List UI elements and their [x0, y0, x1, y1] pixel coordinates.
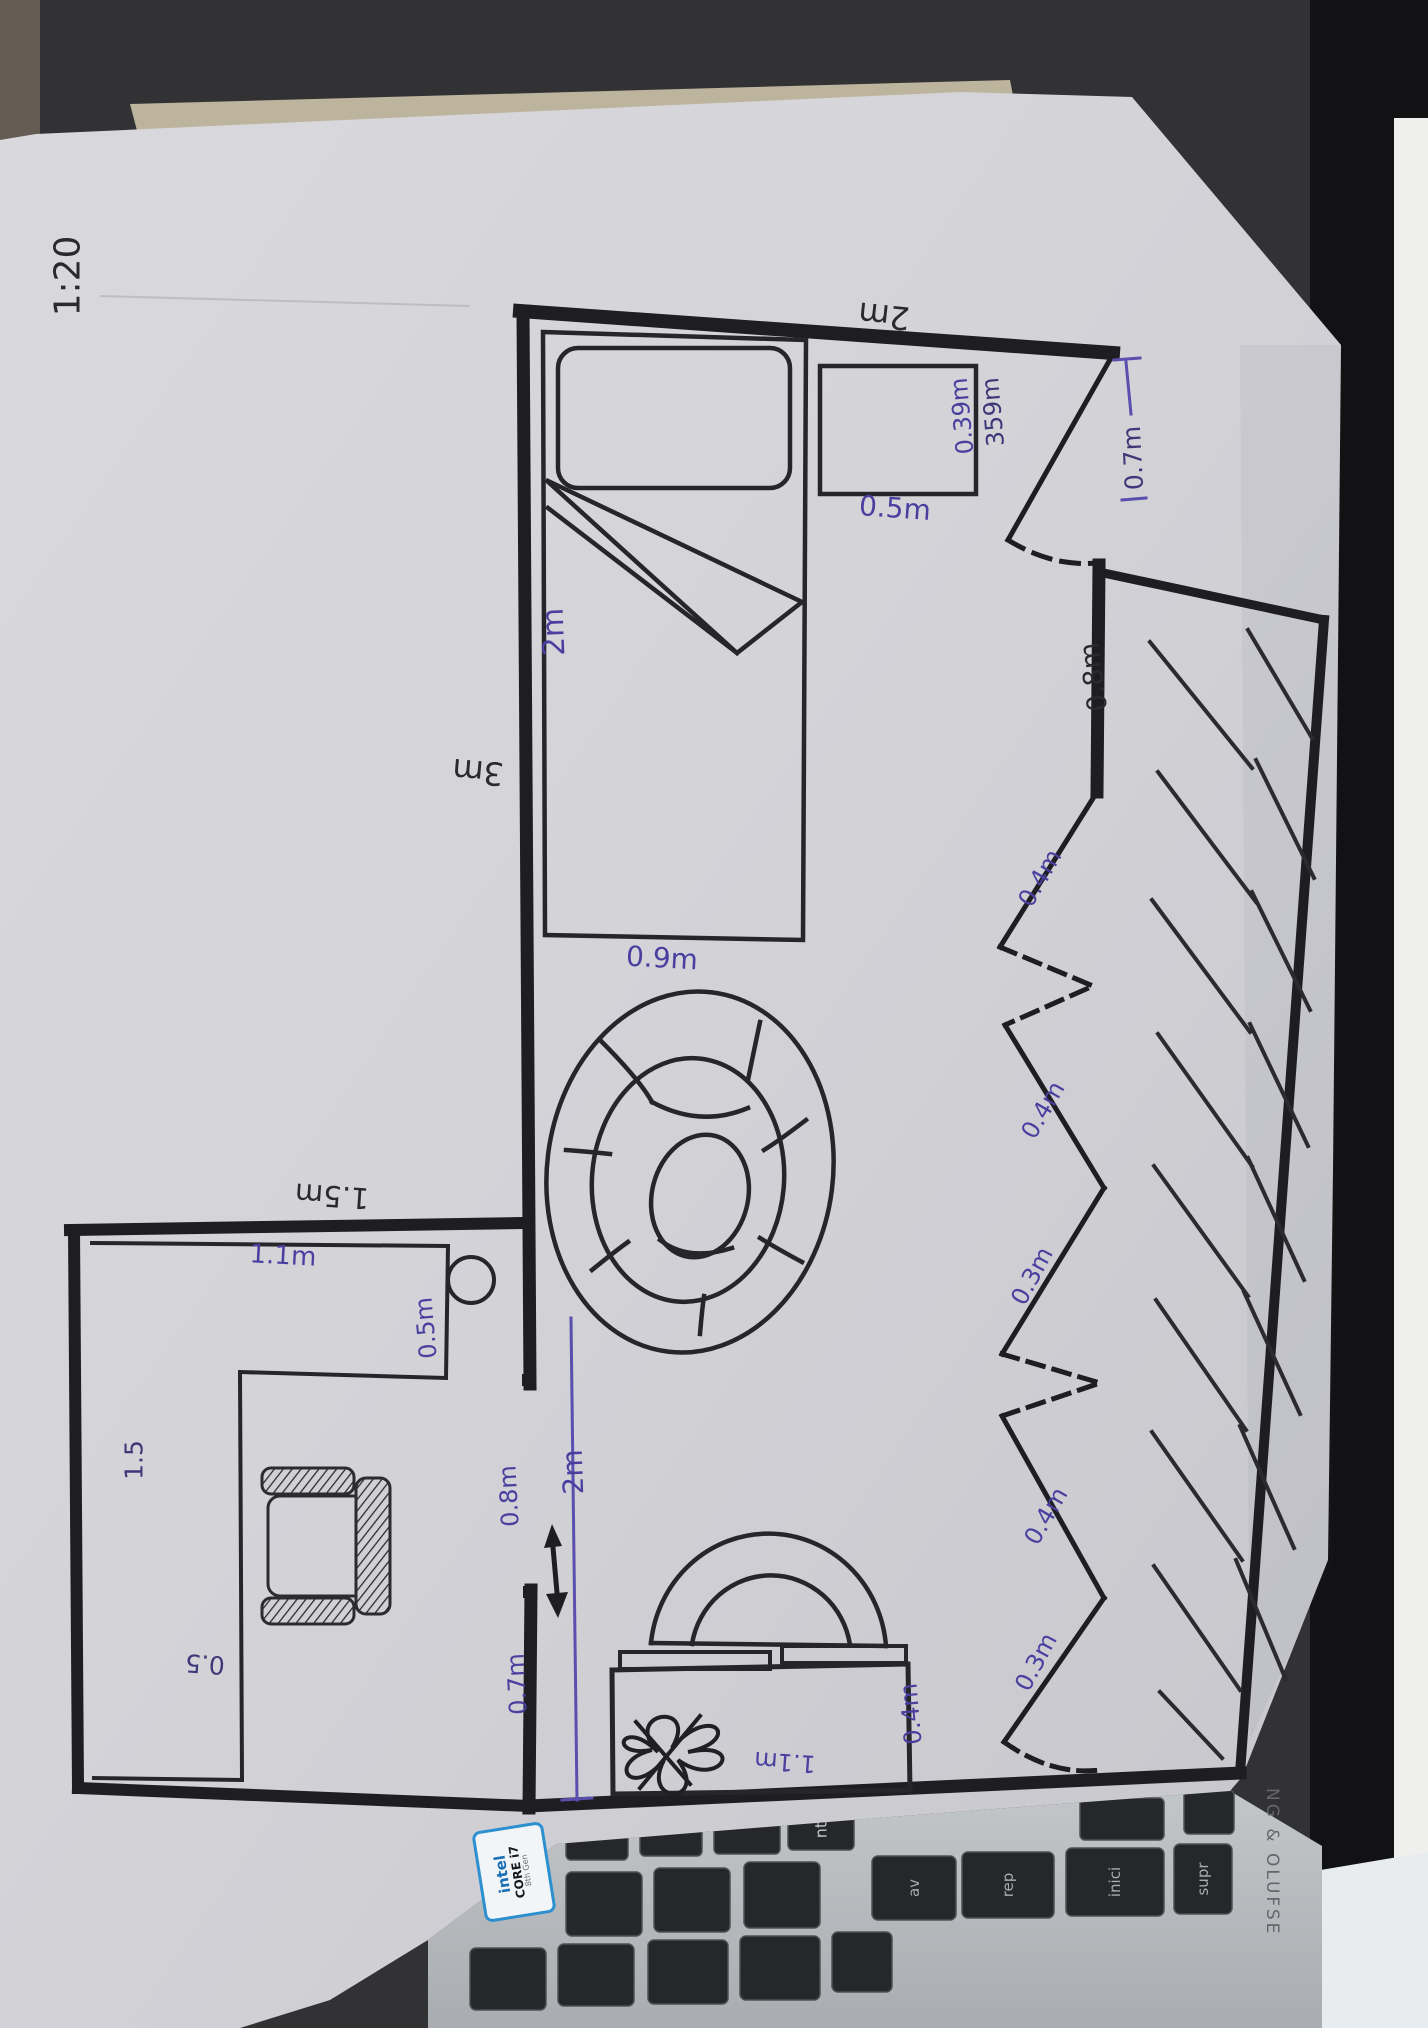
dim-desk-width: 1.1m [249, 1239, 317, 1272]
laptop-brand-text: NG & OLUFSE [1262, 1788, 1282, 1936]
dim-dresser-depth: 0.4m [894, 1682, 927, 1746]
key-re-pag[interactable]: rep [999, 1873, 1017, 1898]
photo-of-hand-drawn-floor-plan: 1:20 2m 3m 2m 0.9m 0.5m 0.39m 359m 0.7m … [0, 0, 1428, 2028]
dim-left-opening-wall-upper: 0.8m [493, 1465, 524, 1528]
key-inicio[interactable]: inici [1106, 1867, 1124, 1897]
dim-left-opening-wall-lower: 0.7m [501, 1653, 532, 1716]
wall-deskroom-left [74, 1230, 78, 1788]
door-jamb-tick-upper [522, 1374, 536, 1386]
key-supr[interactable]: supr [1194, 1862, 1212, 1895]
key-enter[interactable]: nt [812, 1822, 831, 1838]
background-right-white-strip [1394, 118, 1428, 1898]
key-av-pag[interactable]: av [905, 1879, 923, 1897]
dim-left-wall: 3m [451, 751, 506, 793]
scale-note: 1:20 [48, 236, 89, 317]
dim-desk-side-length: 1.5 [120, 1440, 149, 1480]
floor-plan-scene [0, 0, 1428, 2028]
dim-bed-length: 2m [536, 607, 573, 657]
dim-left-opening-total: 2m [556, 1449, 591, 1495]
dim-dresser-width: 1.1m [753, 1746, 816, 1778]
dim-desk-room-width: 1.5m [294, 1176, 371, 1215]
dim-bed-width: 0.9m [625, 940, 698, 977]
dim-entry-door-width: 0.7m [1117, 425, 1149, 491]
intel-core-i7-sticker: intel CORE i7 8th Gen [471, 1821, 557, 1923]
dim-nightstand-width: 0.5m [858, 489, 932, 527]
dim-top-wall: 2m [856, 294, 911, 337]
wall-deskroom-top [70, 1223, 524, 1230]
door-jamb-tick-lower [523, 1586, 537, 1598]
dim-nightstand-depth-alt: 359m [976, 376, 1010, 447]
dim-desk-side-depth: 0.5 [184, 1648, 226, 1680]
dim-desk-depth: 0.5m [409, 1296, 442, 1360]
